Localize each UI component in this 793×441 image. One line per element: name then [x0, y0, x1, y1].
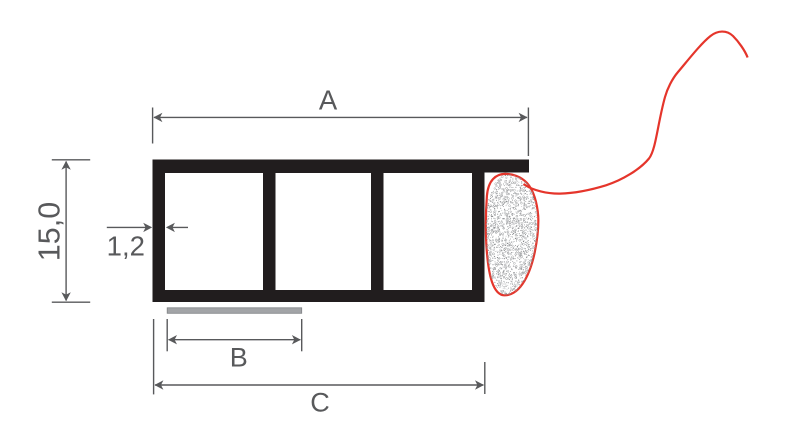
- svg-text:B: B: [230, 343, 248, 373]
- svg-text:C: C: [310, 388, 330, 418]
- svg-text:15,0: 15,0: [33, 202, 67, 261]
- svg-text:A: A: [319, 85, 338, 116]
- svg-text:1,2: 1,2: [107, 231, 145, 262]
